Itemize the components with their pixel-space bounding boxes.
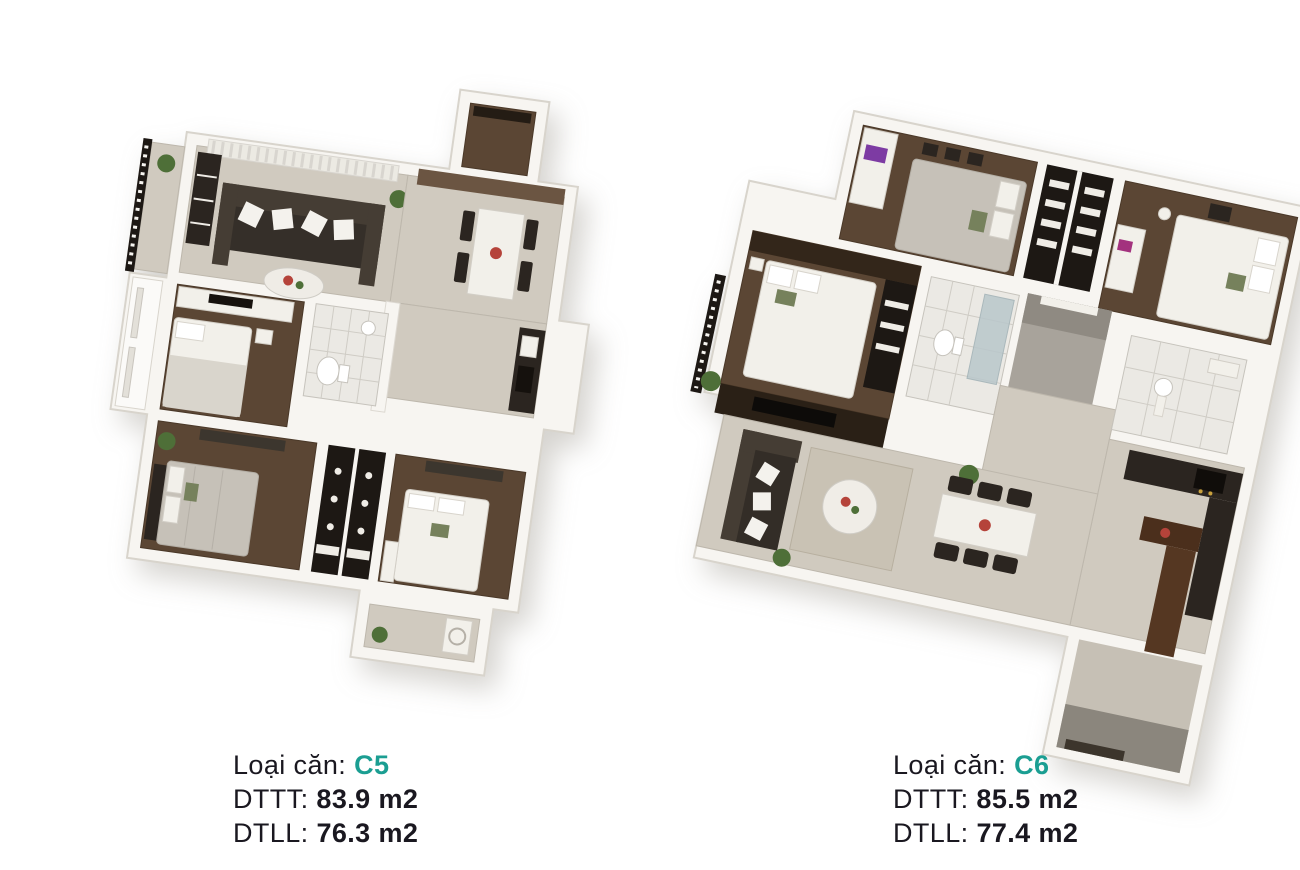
pillow (162, 496, 180, 524)
dttt-value: 85.5 m2 (976, 784, 1078, 814)
dttt-line: DTTT: 85.5 m2 (893, 782, 1078, 816)
floor-plan-c5-render (60, 42, 660, 722)
dttt-value: 83.9 m2 (316, 784, 418, 814)
pillow (184, 482, 199, 502)
unit-type-label: Loại căn: (893, 750, 1006, 780)
pillow (408, 493, 436, 510)
bedroom-small (160, 284, 304, 427)
dtll-value: 77.4 m2 (976, 818, 1078, 848)
nightstand (255, 329, 273, 345)
washing-machine (442, 618, 472, 655)
bathroom (303, 304, 388, 406)
pillow (167, 466, 185, 494)
floor-plan-c6-render (658, 82, 1300, 792)
pillow (753, 492, 771, 510)
unit-type-label: Loại căn: (233, 750, 346, 780)
dining-area (390, 167, 565, 324)
dttt-label: DTTT: (893, 784, 969, 814)
pillow (430, 523, 450, 538)
unit-type-value: C5 (354, 750, 389, 780)
pillow (272, 208, 294, 230)
caption-c5: Loại căn: C5 DTTT: 83.9 m2 DTLL: 76.3 m2 (233, 748, 418, 850)
pillow (437, 498, 465, 515)
page: Loại căn: C5 DTTT: 83.9 m2 DTLL: 76.3 m2 (0, 0, 1300, 870)
duvet (162, 355, 246, 417)
unit-type-line: Loại căn: C6 (893, 748, 1078, 782)
pillow (333, 219, 354, 240)
caption-c6: Loại căn: C6 DTTT: 85.5 m2 DTLL: 77.4 m2 (893, 748, 1078, 850)
pillow (175, 321, 205, 341)
dtll-label: DTLL: (893, 818, 969, 848)
dtll-line: DTLL: 77.4 m2 (893, 816, 1078, 850)
bedroom-master (141, 421, 317, 570)
dttt-line: DTTT: 83.9 m2 (233, 782, 418, 816)
sink (520, 336, 539, 358)
pillow (1248, 265, 1275, 293)
bedroom-2 (378, 454, 526, 599)
pillow (1254, 238, 1281, 266)
dtll-value: 76.3 m2 (316, 818, 418, 848)
nightstand (749, 257, 764, 271)
dtll-line: DTLL: 76.3 m2 (233, 816, 418, 850)
dtll-label: DTLL: (233, 818, 309, 848)
entry (462, 103, 536, 176)
dttt-label: DTTT: (233, 784, 309, 814)
unit-type-line: Loại căn: C5 (233, 748, 418, 782)
unit-type-value: C6 (1014, 750, 1049, 780)
